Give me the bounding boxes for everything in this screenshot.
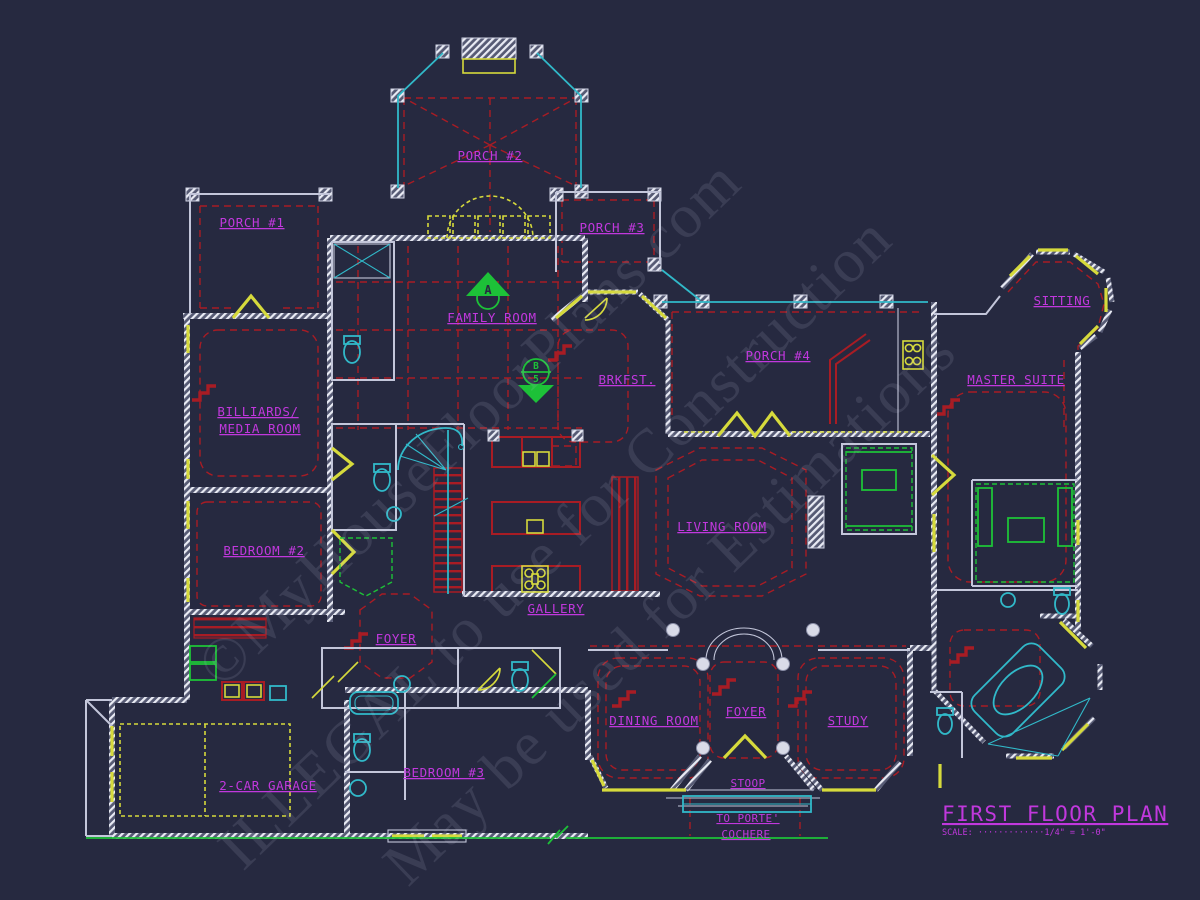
label-family-room: FAMILY ROOM (447, 310, 536, 325)
label-bedroom2: BEDROOM #2 (223, 543, 304, 558)
drawing-scale: SCALE: ·············1/4" = 1'-0" (942, 828, 1106, 838)
toilet-powder (512, 662, 528, 691)
label-bedroom3: BEDROOM #3 (403, 765, 484, 780)
label-master-suite: MASTER SUITE (967, 372, 1065, 387)
section-marker-a: A (466, 272, 510, 309)
label-foyer-main: FOYER (726, 704, 767, 719)
closet-master (976, 484, 1074, 582)
label-garage: 2-CAR GARAGE (219, 778, 317, 793)
label-living-room: LIVING ROOM (677, 519, 766, 534)
label-stoop: STOOP (730, 777, 765, 790)
label-porch3: PORCH #3 (579, 220, 644, 235)
label-porch1: PORCH #1 (219, 215, 284, 230)
label-brkfst: BRKFST. (599, 372, 656, 387)
label-foyer-left: FOYER (376, 631, 417, 646)
toilet-family-bath (344, 336, 360, 363)
label-gallery: GALLERY (528, 601, 585, 616)
label-study: STUDY (828, 713, 869, 728)
master-tub (966, 638, 1069, 741)
label-porch4: PORCH #4 (745, 348, 810, 363)
columns-layer (667, 624, 820, 755)
label-dining-room: DINING ROOM (609, 713, 698, 728)
kitchen-counter (492, 437, 580, 467)
label-billiards-2: MEDIA ROOM (219, 421, 300, 436)
label-porte-1: TO PORTE' (716, 812, 779, 825)
label-billiards-1: BILLIARDS/ (217, 404, 298, 419)
family-bay-columns (428, 196, 550, 238)
toilet-master (1054, 588, 1070, 614)
toilet-master-wc (937, 708, 953, 734)
label-porte-2: COCHERE (721, 828, 770, 841)
label-porch2: PORCH #2 (457, 148, 522, 163)
sink-master (1001, 593, 1015, 607)
drawing-title: FIRST FLOOR PLAN (942, 802, 1168, 826)
marker-a-letter: A (484, 283, 492, 297)
title-block: FIRST FLOOR PLAN SCALE: ·············1/4… (942, 802, 1168, 838)
floor-plan-canvas: A B 5 ©MyHouseFloorPlans.com ILLEGAL to … (0, 0, 1200, 900)
floor-plan-drawing: A B 5 ©MyHouseFloorPlans.com ILLEGAL to … (0, 0, 1200, 900)
label-sitting: SITTING (1034, 293, 1091, 308)
